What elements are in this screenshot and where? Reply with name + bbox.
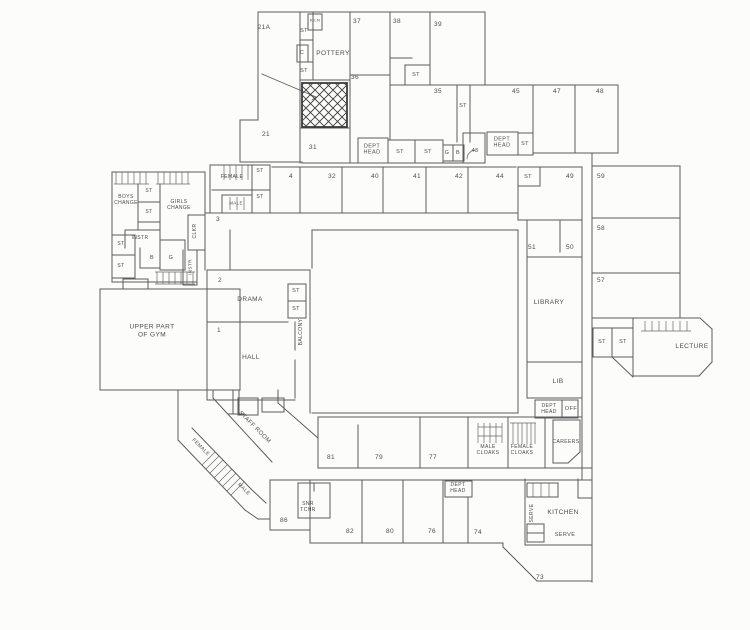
floorplan-drawing [0,0,750,630]
kiln-hatched-area [302,83,347,127]
floor-plan-page: 21ASTKILNCPOTTERYST37383936ST35ST2131DEP… [0,0,750,630]
walls [100,12,712,582]
